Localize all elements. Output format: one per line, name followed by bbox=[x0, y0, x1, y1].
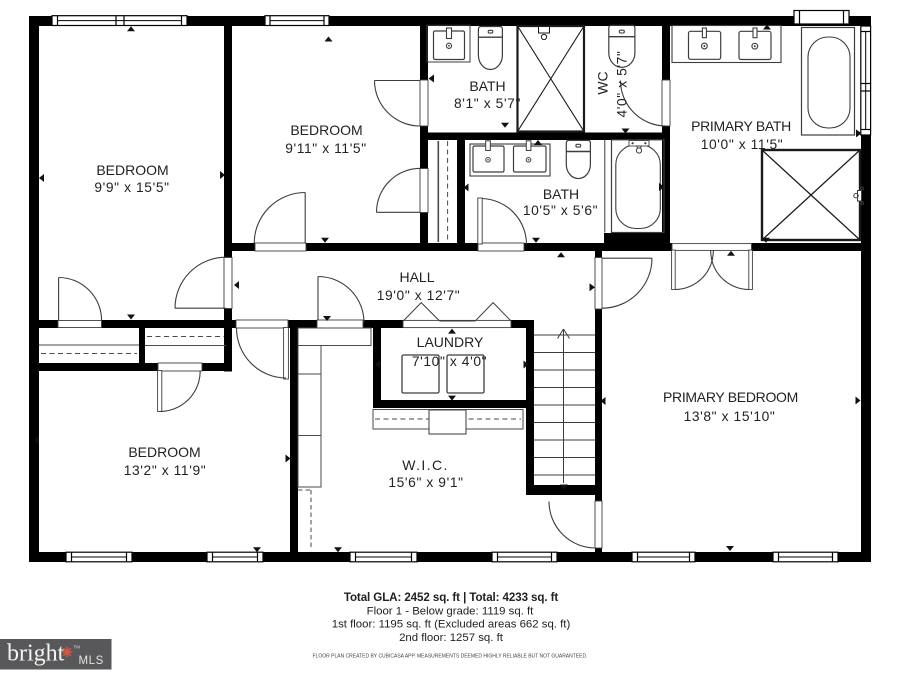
svg-text:9'11" x 11'5": 9'11" x 11'5" bbox=[285, 141, 366, 156]
svg-text:PRIMARY BEDROOM: PRIMARY BEDROOM bbox=[663, 389, 798, 405]
svg-text:HALL: HALL bbox=[399, 269, 434, 285]
svg-text:MLS: MLS bbox=[79, 655, 104, 667]
svg-text:7'10" x 4'0": 7'10" x 4'0" bbox=[412, 354, 487, 369]
svg-text:BEDROOM: BEDROOM bbox=[290, 122, 362, 138]
svg-text:10'0" x 11'5": 10'0" x 11'5" bbox=[701, 137, 783, 152]
svg-text:Floor 1 - Below grade: 1119 sq: Floor 1 - Below grade: 1119 sq. ft bbox=[367, 605, 535, 617]
svg-text:WC: WC bbox=[595, 71, 611, 94]
svg-text:BATH: BATH bbox=[469, 78, 505, 94]
svg-text:13'8" x 15'10": 13'8" x 15'10" bbox=[684, 409, 776, 424]
svg-text:bright: bright bbox=[7, 641, 65, 667]
svg-text:W.I.C.: W.I.C. bbox=[402, 457, 449, 473]
svg-text:13'2" x 11'9": 13'2" x 11'9" bbox=[124, 463, 206, 478]
svg-text:10'5" x 5'6": 10'5" x 5'6" bbox=[523, 203, 598, 218]
svg-text:BATH: BATH bbox=[543, 186, 579, 202]
svg-text:8'1" x 5'7": 8'1" x 5'7" bbox=[454, 96, 521, 111]
svg-text:Total GLA: 2452 sq. ft | Total: Total GLA: 2452 sq. ft | Total: 4233 sq.… bbox=[344, 591, 559, 604]
svg-text:15'6" x 9'1": 15'6" x 9'1" bbox=[388, 475, 463, 490]
svg-text:PRIMARY BATH: PRIMARY BATH bbox=[691, 118, 791, 134]
svg-text:2nd floor: 1257 sq. ft: 2nd floor: 1257 sq. ft bbox=[399, 632, 504, 644]
svg-text:19'0" x 12'7": 19'0" x 12'7" bbox=[377, 288, 460, 303]
svg-text:9'9" x 15'5": 9'9" x 15'5" bbox=[94, 180, 169, 195]
svg-text:LAUNDRY: LAUNDRY bbox=[417, 334, 484, 350]
svg-text:1st floor: 1195 sq. ft (Exclud: 1st floor: 1195 sq. ft (Excluded areas 6… bbox=[332, 619, 571, 631]
svg-text:TM: TM bbox=[74, 645, 81, 650]
svg-text:FLOOR PLAN CREATED BY CUBICASA: FLOOR PLAN CREATED BY CUBICASA APP. MEAS… bbox=[313, 653, 588, 659]
svg-text:4'0" x 5'7": 4'0" x 5'7" bbox=[615, 51, 630, 118]
svg-text:BEDROOM: BEDROOM bbox=[96, 162, 168, 178]
svg-text:BEDROOM: BEDROOM bbox=[128, 444, 200, 460]
